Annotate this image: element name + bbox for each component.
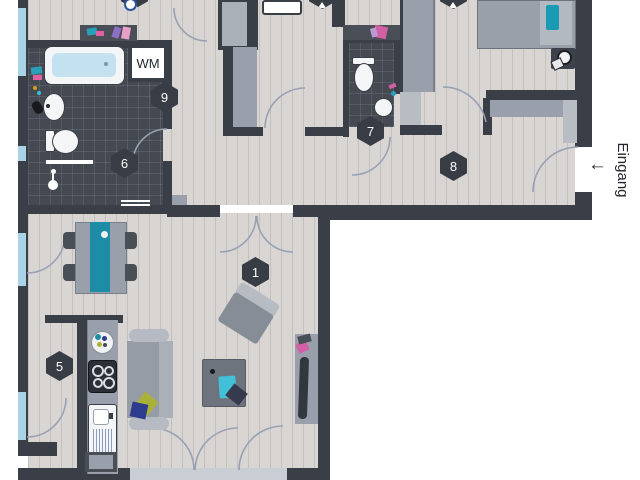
washing-machine-label: WM bbox=[136, 56, 159, 71]
marker-number: 5 bbox=[56, 360, 63, 373]
marker-number: 1 bbox=[252, 266, 259, 279]
hallway-wardrobe bbox=[490, 100, 567, 117]
entrance-label: Eingang bbox=[611, 135, 631, 205]
bath-mat bbox=[121, 200, 150, 202]
towel-rail bbox=[46, 160, 93, 164]
stove bbox=[88, 360, 117, 393]
entrance-arrow-icon: ← bbox=[588, 154, 607, 176]
marker-number: 8 bbox=[450, 160, 457, 173]
decor-item bbox=[96, 31, 104, 36]
toilet-brush-handle bbox=[52, 173, 54, 181]
radiator bbox=[172, 195, 187, 205]
sofa-pillow-navy bbox=[130, 402, 149, 420]
closet-panel bbox=[222, 2, 247, 46]
toilet-bowl bbox=[52, 129, 79, 154]
marker-number: 6 bbox=[121, 157, 128, 170]
decor-item bbox=[391, 91, 396, 96]
bathtub-drain bbox=[104, 62, 108, 66]
shoe-cabinet bbox=[563, 100, 577, 143]
fruit-bowl-item bbox=[103, 343, 107, 347]
wc-sink bbox=[374, 98, 393, 117]
sofa-armrest bbox=[129, 329, 169, 342]
stove-burner bbox=[104, 366, 114, 376]
stove-burner bbox=[92, 365, 104, 377]
tall-wardrobe bbox=[400, 0, 435, 92]
fruit-bowl bbox=[91, 331, 114, 354]
bath-mat bbox=[121, 204, 150, 206]
sink-bowl bbox=[93, 409, 109, 425]
floor-plan: WM Eingang ← bbox=[0, 0, 640, 480]
stove-burner bbox=[103, 377, 115, 389]
wc-toilet-bowl bbox=[354, 63, 374, 92]
coffee-table-item bbox=[210, 369, 215, 374]
sofa-armrest bbox=[129, 417, 169, 430]
bath-accessory bbox=[33, 86, 37, 90]
built-in-wardrobe bbox=[233, 47, 257, 127]
fruit-bowl-item bbox=[102, 336, 107, 341]
kitchen-faucet bbox=[109, 413, 113, 419]
bath-accessory bbox=[33, 75, 42, 80]
bath-accessory bbox=[37, 91, 41, 95]
wardrobe-cap bbox=[400, 92, 421, 125]
dining-chair bbox=[63, 264, 75, 281]
fruit-bowl-item bbox=[95, 334, 101, 340]
table bbox=[262, 0, 302, 15]
plate bbox=[101, 231, 108, 238]
sink-faucet bbox=[46, 104, 50, 108]
kitchen-base-cabinet-top bbox=[89, 455, 113, 469]
sofa-backrest bbox=[159, 341, 173, 418]
washing-machine-closet: WM bbox=[132, 48, 164, 78]
toilet-brush bbox=[48, 180, 58, 190]
fruit-bowl-item bbox=[97, 342, 102, 347]
drainboard bbox=[93, 429, 112, 452]
bed-pillow-teal bbox=[546, 5, 559, 30]
marker-number: 9 bbox=[161, 91, 168, 104]
marker-number: 7 bbox=[367, 125, 374, 138]
dining-chair bbox=[63, 232, 75, 249]
dining-chair bbox=[125, 232, 137, 249]
stove-burner bbox=[93, 378, 103, 388]
dining-chair bbox=[125, 264, 137, 281]
